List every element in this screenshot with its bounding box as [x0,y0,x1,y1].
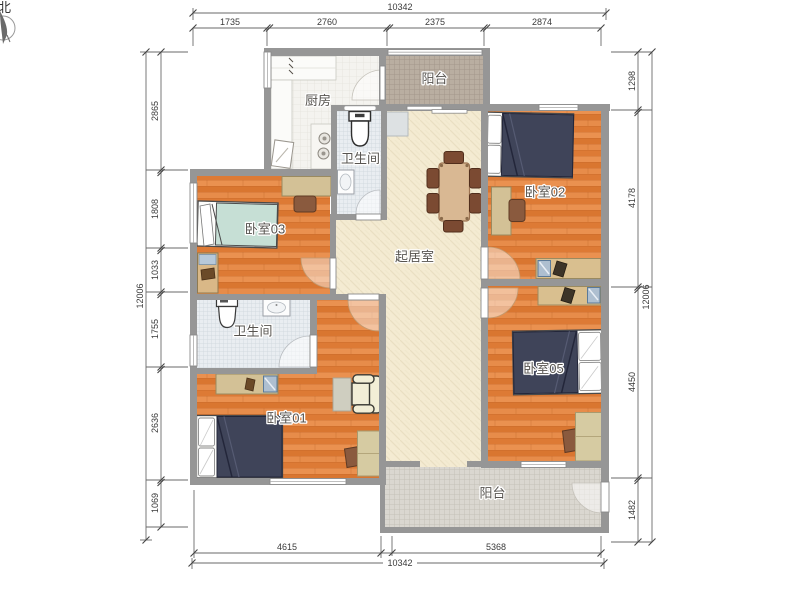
svg-text:12006: 12006 [135,283,145,308]
svg-text:卫生间: 卫生间 [341,151,380,166]
svg-text:2760: 2760 [317,17,337,27]
svg-text:1735: 1735 [220,17,240,27]
svg-text:卧室05: 卧室05 [523,361,563,376]
svg-text:1298: 1298 [627,71,637,91]
svg-text:2874: 2874 [532,17,552,27]
svg-text:阳台: 阳台 [421,71,447,86]
svg-text:12006: 12006 [641,284,651,309]
svg-text:厨房: 厨房 [305,93,331,108]
svg-text:卧室02: 卧室02 [525,185,565,200]
svg-text:1755: 1755 [150,319,160,339]
svg-text:2375: 2375 [425,17,445,27]
svg-text:卧室01: 卧室01 [266,411,306,426]
svg-text:2865: 2865 [150,101,160,121]
svg-text:10342: 10342 [387,558,412,568]
svg-text:卫生间: 卫生间 [233,324,272,339]
svg-text:5368: 5368 [486,542,506,552]
svg-text:起居室: 起居室 [395,249,434,264]
svg-text:4615: 4615 [277,542,297,552]
svg-text:北: 北 [0,0,11,15]
svg-text:4178: 4178 [627,188,637,208]
svg-text:2636: 2636 [150,413,160,433]
svg-text:1033: 1033 [150,260,160,280]
svg-text:1069: 1069 [150,493,160,513]
svg-text:卧室03: 卧室03 [245,222,285,237]
svg-text:阳台: 阳台 [479,486,505,501]
svg-text:1482: 1482 [627,500,637,520]
svg-text:1808: 1808 [150,199,160,219]
svg-text:4450: 4450 [627,372,637,392]
svg-text:10342: 10342 [387,2,412,12]
